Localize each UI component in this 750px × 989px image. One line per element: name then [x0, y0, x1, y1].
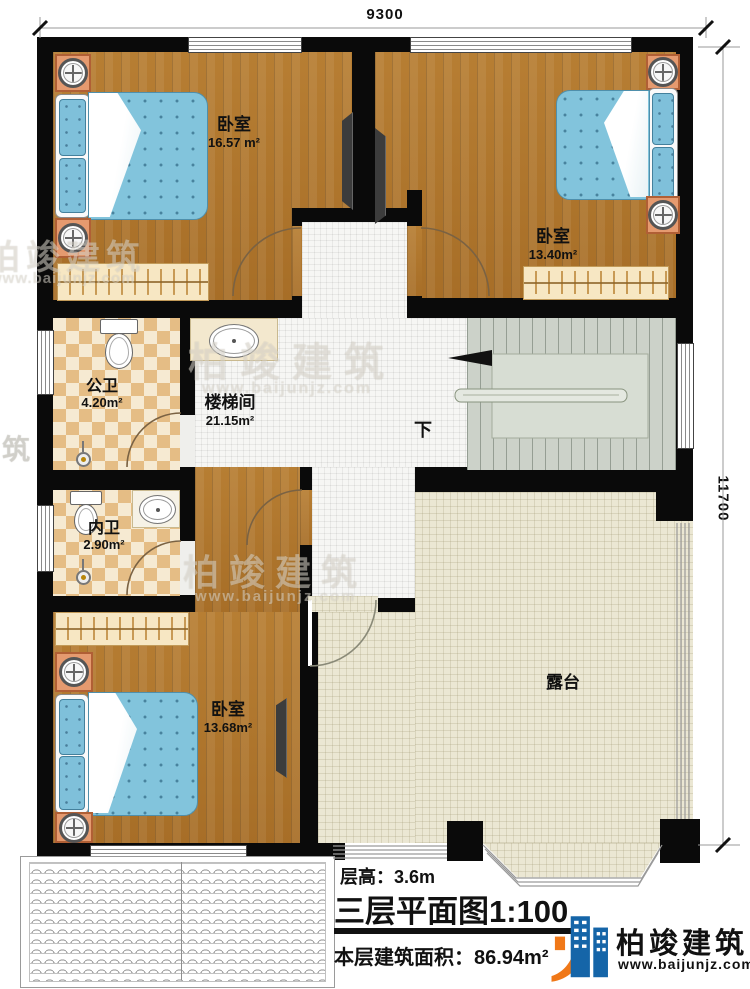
roof-seam: [181, 862, 182, 980]
terrace-pillar-top: [656, 479, 693, 521]
area-bedroom-top-right: 13.40m²: [493, 247, 613, 262]
nightstand: [55, 652, 93, 692]
lamp-icon: [648, 200, 678, 230]
toilet-tank: [100, 319, 138, 334]
label-ensuite-bathroom: 内卫: [60, 514, 148, 538]
pillow: [652, 147, 674, 199]
wardrobe: [55, 612, 189, 646]
toilet-bowl: [105, 333, 133, 369]
watermark-partial: 筑: [2, 428, 30, 468]
tv-icon: [375, 128, 386, 224]
brand-website: www.baijunjz.com: [618, 956, 750, 972]
nightstand: [55, 218, 91, 258]
hall-top-wall: [292, 208, 422, 222]
pillow: [59, 756, 85, 810]
brand-logo: 柏竣建筑 www.baijunjz.com: [548, 914, 748, 986]
terrace-pillar-right: [660, 819, 700, 863]
label-stairwell: 楼梯间: [175, 388, 285, 413]
area-stairwell: 21.15m²: [175, 413, 285, 428]
brand-logo-icon: [548, 914, 616, 984]
window-left-public-bath: [37, 330, 54, 395]
room-terrace-lower: [318, 612, 415, 843]
wardrobe: [57, 263, 209, 301]
stairwell-floor: [467, 318, 676, 470]
roof-tiles: [20, 856, 335, 988]
area-public-bathroom: 4.20m²: [58, 395, 146, 410]
door-opening-bedroom2: [407, 226, 422, 296]
window-top-right: [410, 37, 632, 53]
label-public-bathroom: 公卫: [58, 372, 146, 396]
roof-tile-pattern: [29, 862, 326, 982]
area-ensuite-bathroom: 2.90m²: [60, 537, 148, 552]
terrace-pillar-left: [447, 821, 483, 861]
pillow: [652, 93, 674, 145]
nightstand: [55, 54, 91, 92]
plan-title-text: 三层平面图: [334, 894, 489, 929]
floor-area-label: 本层建筑面积：86.94m²: [334, 941, 549, 970]
label-bedroom-bottom: 卧室: [168, 695, 288, 720]
wash-basin: [209, 324, 259, 358]
door-opening-bedroom1: [292, 226, 302, 296]
area-bedroom-bottom: 13.68m²: [168, 720, 288, 735]
nightstand: [55, 812, 93, 843]
door-opening-ensuite-bath: [180, 541, 195, 595]
window-top-left: [188, 37, 302, 53]
pillow: [59, 158, 86, 213]
top-dimension-label: 9300: [330, 6, 440, 23]
plan-title: 三层平面图1:100: [334, 886, 568, 931]
floor-drain: [76, 452, 91, 467]
bedroom3-entry-floor: [195, 467, 300, 612]
pillow: [59, 699, 85, 755]
label-bedroom-top-right: 卧室: [493, 222, 613, 247]
right-dimension-label: 11700: [715, 469, 732, 529]
stair-direction-label: 下: [406, 416, 440, 442]
lamp-icon: [58, 58, 88, 88]
toilet-tank: [70, 491, 102, 505]
nightstand: [646, 196, 680, 234]
label-bedroom-top-left: 卧室: [174, 110, 294, 135]
door-opening-bedroom3: [300, 490, 312, 545]
lamp-icon: [59, 657, 89, 687]
window-left-ensuite: [37, 505, 54, 572]
area-bedroom-top-left: 16.57 m²: [174, 135, 294, 150]
lamp-icon: [648, 57, 678, 87]
door-opening-terrace: [308, 596, 378, 612]
floor-drain: [76, 570, 91, 585]
lamp-icon: [59, 813, 89, 843]
pillow: [59, 99, 86, 156]
terrace-bay: [483, 843, 662, 879]
floor-plan-page: 9300 11700: [0, 0, 750, 989]
lamp-icon: [58, 223, 88, 253]
wardrobe: [523, 266, 669, 300]
tv-icon: [342, 112, 353, 210]
label-terrace: 露台: [518, 668, 608, 693]
nightstand: [646, 54, 680, 90]
hallway-lower: [312, 467, 415, 598]
window-right-stair: [677, 343, 694, 449]
hallway-upper: [302, 222, 407, 318]
